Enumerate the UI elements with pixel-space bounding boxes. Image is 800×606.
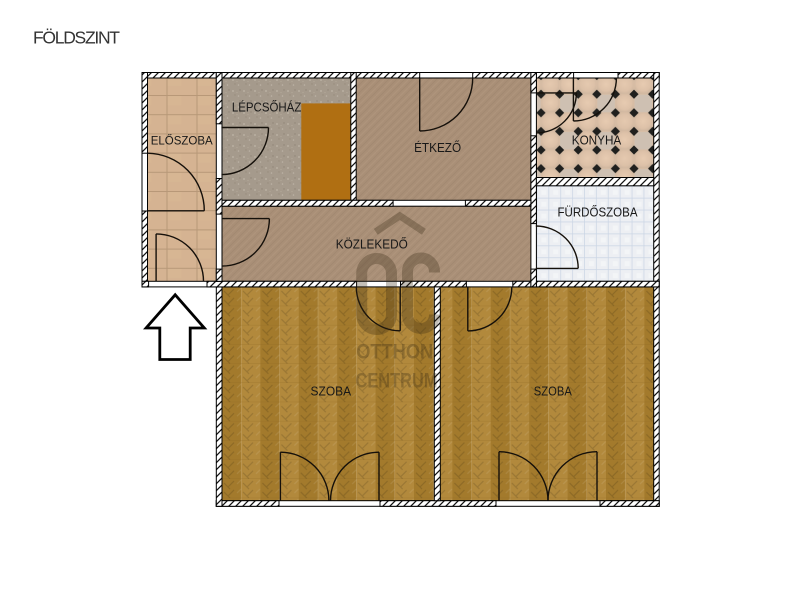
svg-text:OTTHON: OTTHON <box>356 340 433 364</box>
svg-text:FÖLDSZINT: FÖLDSZINT <box>33 28 120 48</box>
svg-text:FÜRDŐSZOBA: FÜRDŐSZOBA <box>558 205 639 220</box>
svg-text:ÉTKEZŐ: ÉTKEZŐ <box>414 140 461 155</box>
svg-text:LÉPCSŐHÁZ: LÉPCSŐHÁZ <box>232 100 302 115</box>
svg-text:ELŐSZOBA: ELŐSZOBA <box>151 132 213 147</box>
svg-text:SZOBA: SZOBA <box>534 385 573 399</box>
svg-text:KONYHA: KONYHA <box>572 134 622 148</box>
svg-text:CENTRUM: CENTRUM <box>356 369 438 393</box>
svg-text:KÖZLEKEDŐ: KÖZLEKEDŐ <box>336 237 408 252</box>
svg-text:SZOBA: SZOBA <box>311 385 352 399</box>
